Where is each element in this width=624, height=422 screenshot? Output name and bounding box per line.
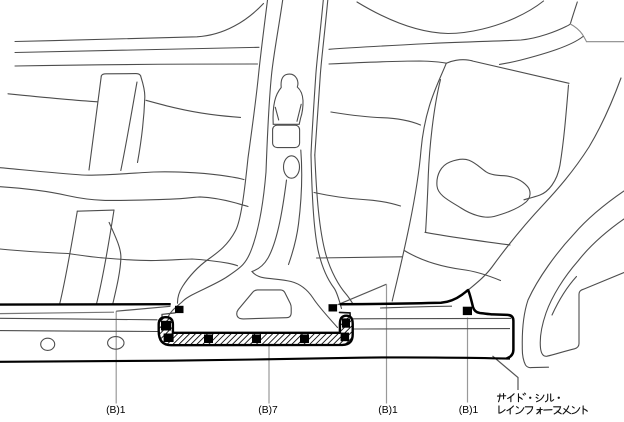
svg-text:(B)1: (B)1 xyxy=(378,405,398,416)
svg-text:(B)1: (B)1 xyxy=(459,405,479,416)
svg-text:(B)1: (B)1 xyxy=(106,405,126,416)
svg-text:(B)7: (B)7 xyxy=(258,405,278,416)
